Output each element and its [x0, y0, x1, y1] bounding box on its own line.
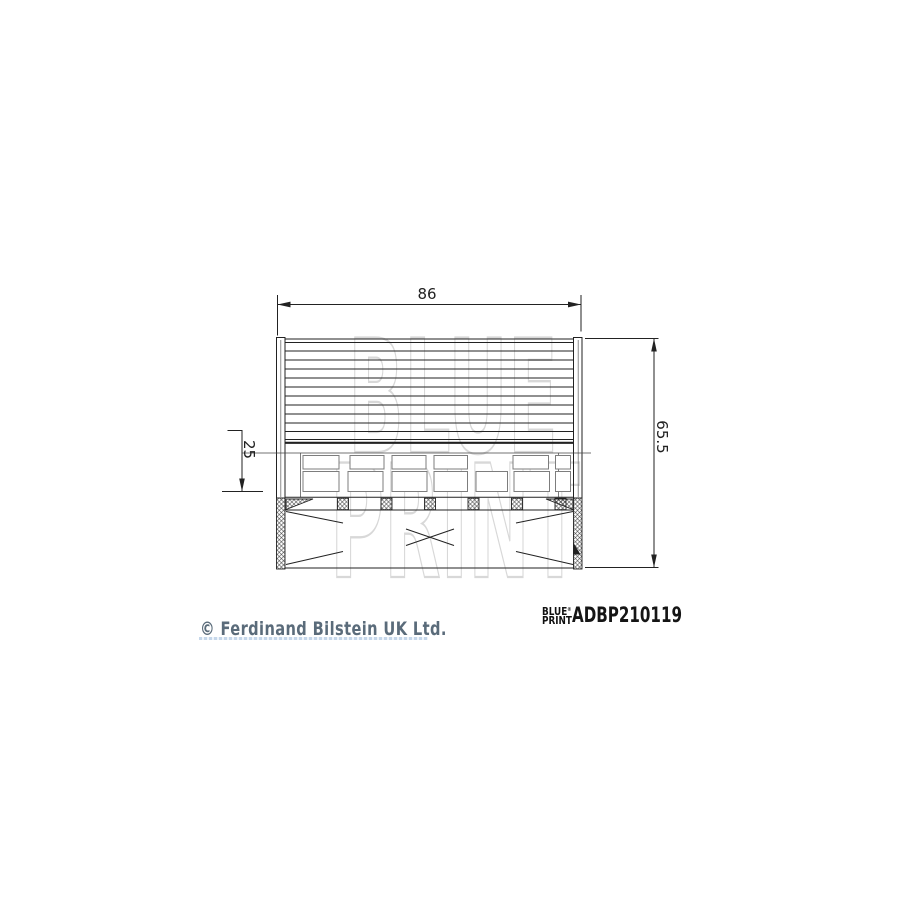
- dimension-height: [585, 339, 659, 568]
- arrowhead-down: [239, 479, 245, 492]
- registered-trademark-icon: ®: [567, 607, 571, 613]
- right-seam-bar: [574, 498, 583, 569]
- dimension-width-label: 86: [417, 285, 436, 303]
- left-seal-wedge: [286, 499, 313, 510]
- dimension-inner-label: 25: [240, 440, 258, 459]
- logo-line-print: PRINT: [542, 615, 572, 627]
- gasket-segment: [381, 498, 392, 510]
- catalog-image-canvas: BLUE PRINT: [0, 0, 900, 900]
- gasket-segment: [468, 498, 479, 510]
- arrowhead-up: [651, 339, 657, 352]
- gasket-segment: [338, 498, 349, 510]
- arrowhead-down: [651, 555, 657, 568]
- arrowhead-right: [568, 302, 581, 308]
- gasket-segment: [425, 498, 436, 510]
- arrowhead-left: [278, 302, 291, 308]
- left-seam-bar: [277, 498, 286, 569]
- blueprint-logo: BLUE® PRINT: [542, 606, 572, 626]
- gasket-segment: [512, 498, 523, 510]
- filter-technical-drawing: BLUE PRINT: [0, 0, 900, 900]
- part-number: ADBP210119: [572, 603, 682, 627]
- fineprint-divider: [199, 637, 428, 640]
- dimension-height-label: 65.5: [653, 420, 671, 453]
